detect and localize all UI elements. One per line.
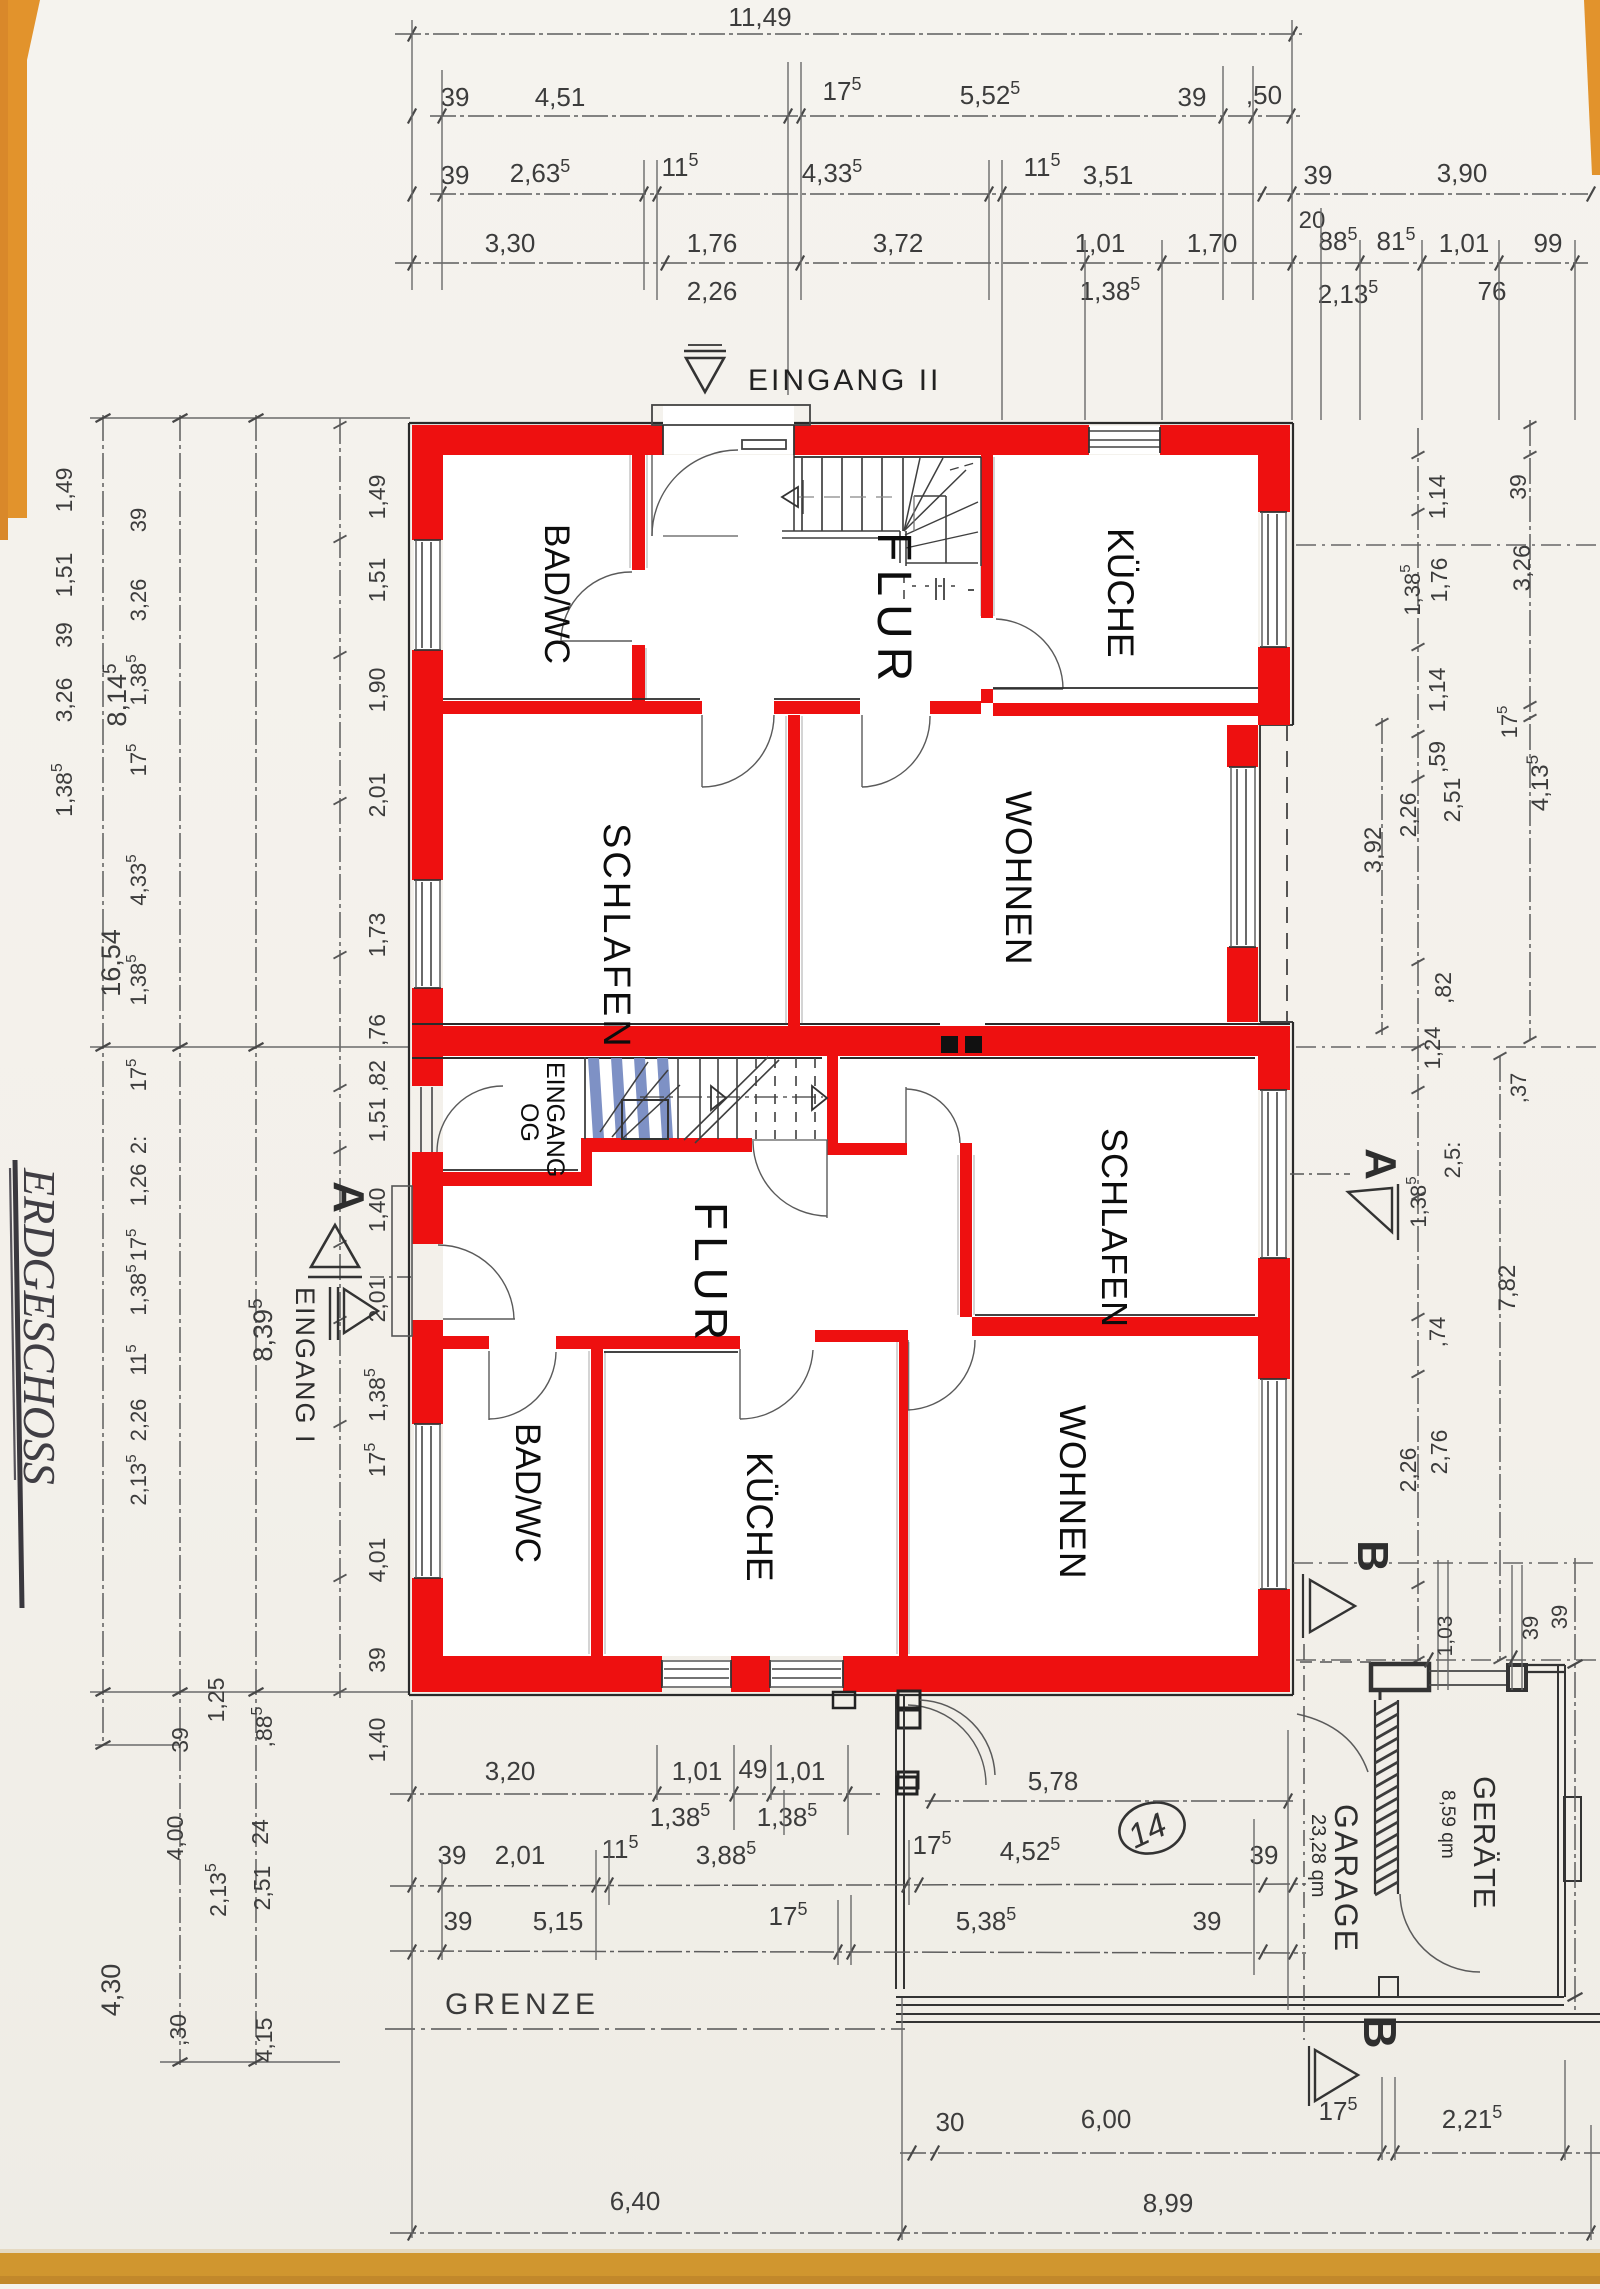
svg-text:GRENZE: GRENZE [445, 1988, 600, 2021]
svg-text:7,82: 7,82 [1494, 1265, 1521, 1312]
svg-text:4,51: 4,51 [535, 82, 586, 112]
svg-text:WOHNEN: WOHNEN [1052, 1405, 1093, 1580]
svg-text:76: 76 [1478, 276, 1507, 306]
svg-text:16,54: 16,54 [96, 929, 126, 997]
svg-text:3,30: 3,30 [485, 228, 536, 258]
svg-text:24: 24 [247, 1819, 273, 1845]
svg-text:1,01: 1,01 [1439, 228, 1490, 258]
svg-text:1,25: 1,25 [203, 1678, 229, 1723]
svg-text:1,49: 1,49 [364, 475, 390, 520]
svg-text:,76: ,76 [364, 1014, 390, 1046]
svg-text:3,20: 3,20 [485, 1756, 536, 1786]
svg-text:3,26: 3,26 [126, 579, 151, 622]
svg-text:39: 39 [364, 1647, 390, 1673]
svg-text:39: 39 [1518, 1616, 1543, 1640]
svg-text:4,01: 4,01 [364, 1538, 390, 1583]
svg-text:2:: 2: [126, 1136, 151, 1154]
svg-text:3,90: 3,90 [1437, 158, 1488, 188]
svg-text:39: 39 [167, 1727, 193, 1753]
svg-text:,82: ,82 [364, 1060, 390, 1092]
svg-text:2,01: 2,01 [364, 773, 390, 818]
svg-text:FLUR: FLUR [685, 1202, 737, 1346]
svg-text:GERÄTE: GERÄTE [1467, 1776, 1502, 1909]
svg-text:1,14: 1,14 [1424, 667, 1450, 712]
svg-text:39: 39 [441, 82, 470, 112]
svg-text:BAD/WC: BAD/WC [508, 1423, 547, 1563]
svg-text:,30: ,30 [165, 2014, 191, 2046]
svg-text:FLUR: FLUR [867, 532, 920, 689]
svg-text:GARAGE: GARAGE [1328, 1804, 1364, 1953]
svg-text:1,01: 1,01 [672, 1756, 723, 1786]
svg-text:OG: OG [515, 1103, 543, 1142]
svg-text:11,49: 11,49 [728, 2, 791, 32]
svg-text:4,00: 4,00 [162, 1816, 188, 1861]
svg-text:39: 39 [441, 160, 470, 190]
svg-text:1,40: 1,40 [364, 1718, 390, 1763]
svg-text:30: 30 [936, 2107, 965, 2137]
svg-text:1,01: 1,01 [775, 1756, 826, 1786]
svg-text:2,5:: 2,5: [1440, 1142, 1465, 1179]
svg-text:A: A [324, 1181, 373, 1213]
svg-text:8,99: 8,99 [1143, 2188, 1194, 2218]
svg-text:1,70: 1,70 [1187, 228, 1238, 258]
svg-text:2,26: 2,26 [687, 276, 738, 306]
svg-text:3,26: 3,26 [1509, 545, 1536, 592]
svg-text:,82: ,82 [1430, 972, 1456, 1004]
svg-text:1,01: 1,01 [1075, 228, 1126, 258]
svg-text:8,59 qm: 8,59 qm [1437, 1790, 1458, 1859]
svg-text:B: B [1354, 2015, 1406, 2048]
svg-text:2,51: 2,51 [249, 1866, 275, 1911]
svg-text:A: A [1356, 1148, 1405, 1180]
svg-text:EINGANG I: EINGANG I [290, 1287, 320, 1445]
svg-text:SCHLAFEN: SCHLAFEN [595, 823, 637, 1050]
svg-text:2,01: 2,01 [364, 1278, 390, 1323]
svg-text:EINGANG: EINGANG [541, 1062, 569, 1177]
svg-text:4,30: 4,30 [96, 1964, 126, 2017]
svg-text:,74: ,74 [1425, 1317, 1450, 1348]
svg-text:1,24: 1,24 [1420, 1027, 1445, 1070]
svg-text:39: 39 [444, 1906, 473, 1936]
svg-text:5,78: 5,78 [1028, 1766, 1079, 1796]
svg-text:39: 39 [51, 622, 77, 648]
svg-text:2,26: 2,26 [1395, 1448, 1421, 1493]
svg-text:1,76: 1,76 [687, 228, 738, 258]
svg-text:,50: ,50 [1246, 80, 1282, 110]
svg-text:1,14: 1,14 [1424, 474, 1450, 519]
svg-text:1,51: 1,51 [51, 553, 77, 598]
svg-text:39: 39 [1304, 160, 1333, 190]
svg-text:3,26: 3,26 [51, 678, 77, 723]
svg-text:4,15: 4,15 [251, 2018, 277, 2063]
svg-text:39: 39 [1505, 474, 1531, 500]
svg-text:49: 49 [739, 1754, 768, 1784]
svg-text:1,90: 1,90 [364, 668, 390, 713]
svg-text:3,72: 3,72 [873, 228, 924, 258]
svg-text:39: 39 [1547, 1605, 1572, 1629]
svg-text:KÜCHE: KÜCHE [739, 1452, 780, 1582]
svg-text:3,92: 3,92 [1360, 827, 1387, 874]
svg-text:B: B [1348, 1540, 1397, 1572]
svg-text:6,00: 6,00 [1081, 2104, 1132, 2134]
svg-text:6,40: 6,40 [610, 2186, 661, 2216]
svg-text:39: 39 [1193, 1906, 1222, 1936]
svg-text:3,51: 3,51 [1083, 160, 1134, 190]
svg-text:39: 39 [1178, 82, 1207, 112]
svg-text:,59: ,59 [1424, 741, 1450, 773]
svg-text:1,49: 1,49 [51, 468, 77, 513]
svg-text:1,51: 1,51 [364, 1098, 390, 1143]
svg-text:5,15: 5,15 [533, 1906, 584, 1936]
svg-text:1,03: 1,03 [1434, 1616, 1457, 1657]
svg-text:1,76: 1,76 [1426, 558, 1452, 603]
svg-text:23,28 qm: 23,28 qm [1307, 1814, 1329, 1897]
svg-text:2,01: 2,01 [495, 1840, 546, 1870]
svg-text:99: 99 [1534, 228, 1563, 258]
svg-text:2,26: 2,26 [126, 1399, 151, 1442]
svg-text:,37: ,37 [1506, 1073, 1531, 1104]
svg-text:2,51: 2,51 [1439, 778, 1465, 823]
svg-text:2,76: 2,76 [1426, 1430, 1452, 1475]
svg-text:EINGANG II: EINGANG II [748, 364, 941, 397]
svg-text:39: 39 [126, 508, 151, 532]
svg-text:1,51: 1,51 [364, 558, 390, 603]
svg-text:KÜCHE: KÜCHE [1100, 528, 1141, 658]
svg-text:BAD/WC: BAD/WC [537, 524, 576, 664]
svg-text:2,26: 2,26 [1395, 793, 1421, 838]
svg-text:WOHNEN: WOHNEN [998, 791, 1039, 966]
svg-text:1,26: 1,26 [126, 1164, 151, 1207]
svg-text:SCHLAFEN: SCHLAFEN [1094, 1128, 1135, 1328]
svg-text:1,73: 1,73 [364, 913, 390, 958]
